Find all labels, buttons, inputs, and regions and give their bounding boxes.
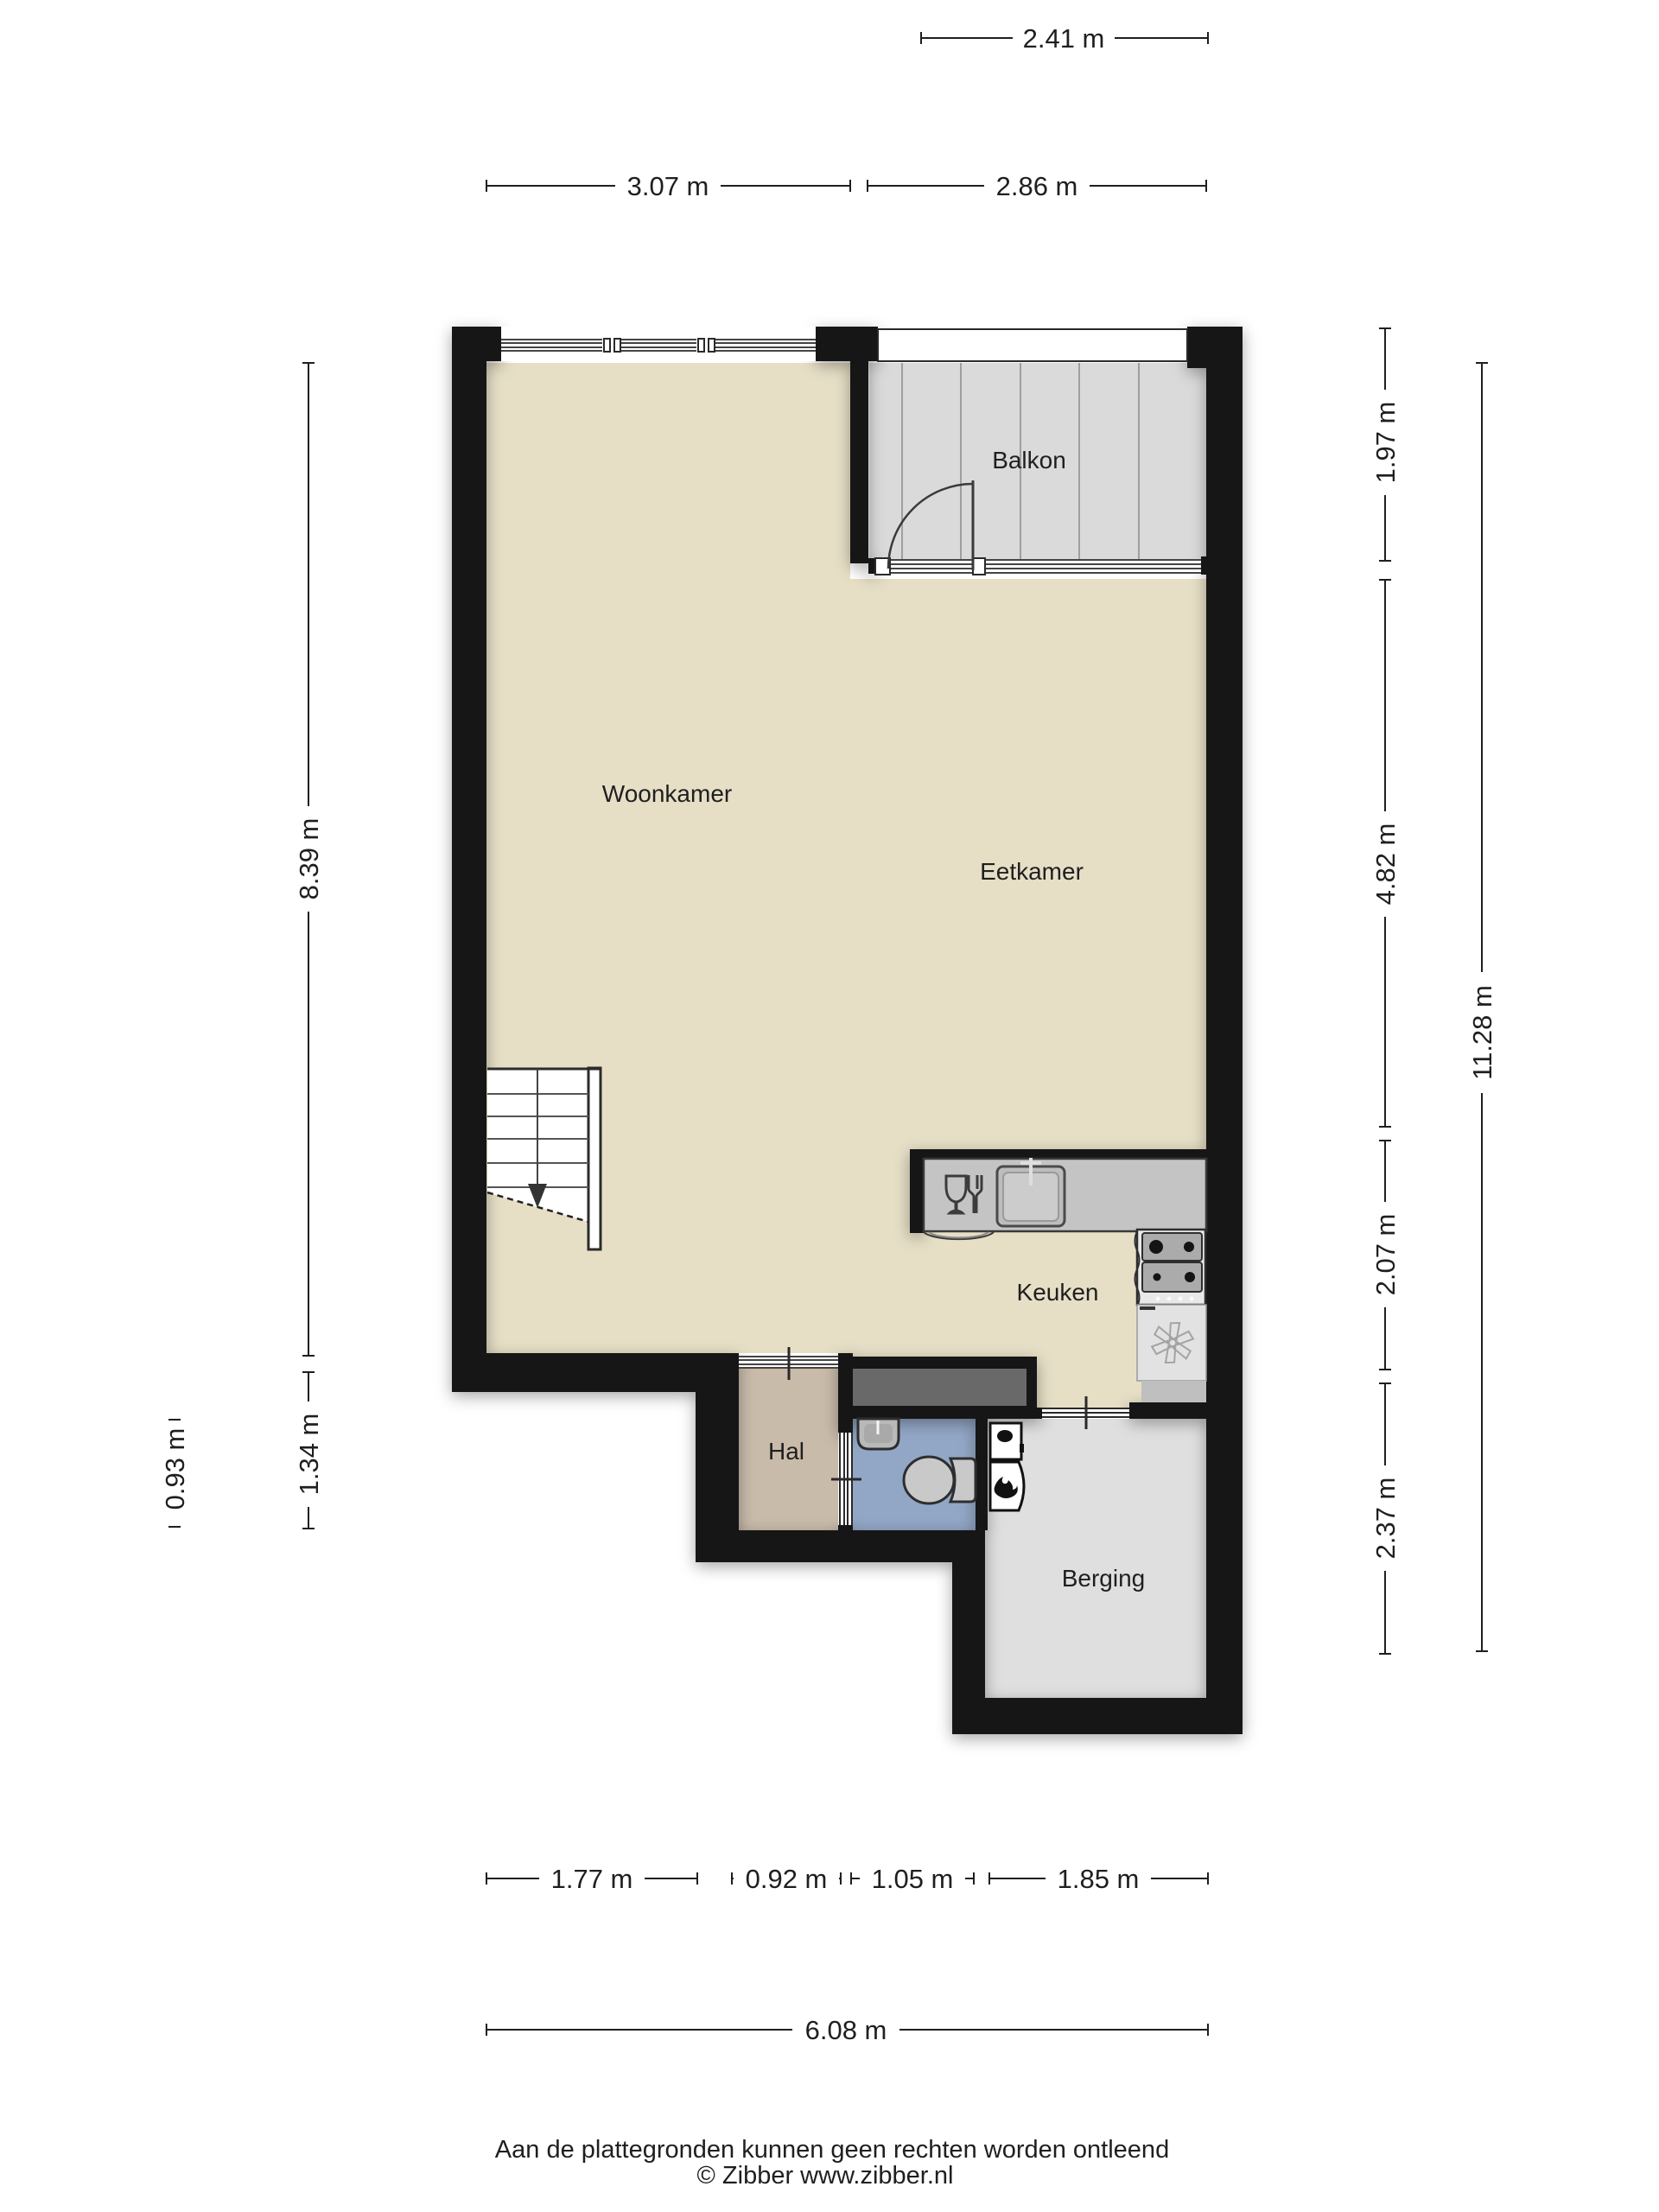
svg-text:0.92 m: 0.92 m bbox=[746, 1864, 828, 1894]
svg-text:© Zibber www.zibber.nl: © Zibber www.zibber.nl bbox=[697, 2162, 954, 2190]
svg-text:Balkon: Balkon bbox=[992, 447, 1066, 474]
svg-text:Woonkamer: Woonkamer bbox=[602, 780, 732, 807]
svg-text:1.77 m: 1.77 m bbox=[551, 1864, 633, 1894]
svg-text:1.34 m: 1.34 m bbox=[294, 1414, 324, 1496]
svg-text:Eetkamer: Eetkamer bbox=[980, 858, 1084, 885]
svg-text:Aan de plattegronden kunnen ge: Aan de plattegronden kunnen geen rechten… bbox=[495, 2136, 1169, 2164]
svg-text:6.08 m: 6.08 m bbox=[805, 2015, 887, 2045]
svg-text:1.85 m: 1.85 m bbox=[1058, 1864, 1140, 1894]
svg-text:2.86 m: 2.86 m bbox=[996, 171, 1078, 201]
svg-text:1.05 m: 1.05 m bbox=[872, 1864, 954, 1894]
svg-text:Berging: Berging bbox=[1062, 1565, 1146, 1592]
svg-text:8.39 m: 8.39 m bbox=[294, 818, 324, 900]
svg-text:2.41 m: 2.41 m bbox=[1023, 23, 1105, 54]
svg-text:0.93 m: 0.93 m bbox=[160, 1428, 190, 1510]
svg-text:Keuken: Keuken bbox=[1017, 1279, 1099, 1306]
svg-text:11.28 m: 11.28 m bbox=[1467, 985, 1497, 1080]
svg-text:Hal: Hal bbox=[768, 1438, 804, 1465]
svg-text:2.37 m: 2.37 m bbox=[1370, 1478, 1401, 1560]
svg-text:2.07 m: 2.07 m bbox=[1370, 1214, 1401, 1296]
svg-text:1.97 m: 1.97 m bbox=[1370, 402, 1401, 484]
svg-text:4.82 m: 4.82 m bbox=[1370, 823, 1401, 906]
svg-text:3.07 m: 3.07 m bbox=[627, 171, 709, 201]
